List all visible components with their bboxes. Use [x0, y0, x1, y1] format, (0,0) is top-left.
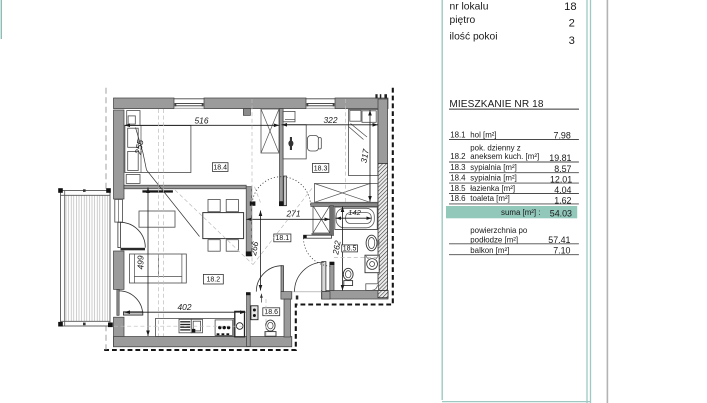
svg-text:piętro: piętro: [450, 15, 476, 26]
svg-text:18.3: 18.3: [314, 165, 328, 172]
svg-text:18.5: 18.5: [450, 184, 466, 193]
svg-text:18.4: 18.4: [213, 164, 227, 171]
svg-text:322: 322: [324, 115, 338, 125]
svg-text:3: 3: [569, 35, 575, 47]
svg-text:18.1: 18.1: [275, 235, 289, 242]
svg-text:sypialnia [m²]: sypialnia [m²]: [470, 163, 516, 172]
svg-text:balkon [m²]: balkon [m²]: [470, 246, 509, 255]
svg-text:499: 499: [135, 255, 145, 269]
svg-text:516: 516: [195, 115, 209, 125]
svg-text:aneksem kuch. [m²]: aneksem kuch. [m²]: [470, 152, 539, 161]
svg-text:7.10: 7.10: [553, 246, 570, 256]
svg-text:142: 142: [348, 208, 361, 217]
svg-text:18.2: 18.2: [206, 277, 220, 284]
svg-text:18.1: 18.1: [450, 131, 465, 140]
svg-text:ilość pokoi: ilość pokoi: [450, 32, 498, 43]
svg-text:hol [m²]: hol [m²]: [470, 131, 496, 140]
svg-text:402: 402: [178, 302, 192, 312]
svg-text:powierzchnia po: powierzchnia po: [470, 226, 528, 235]
svg-text:7.98: 7.98: [554, 130, 571, 140]
svg-text:toaleta [m²]: toaleta [m²]: [470, 194, 509, 203]
svg-text:suma [m²] :: suma [m²] :: [501, 208, 540, 217]
svg-text:2: 2: [569, 17, 575, 29]
svg-text:271: 271: [286, 208, 301, 218]
svg-text:nr lokalu: nr lokalu: [450, 2, 489, 13]
svg-text:54.03: 54.03: [550, 209, 572, 219]
svg-text:18.6: 18.6: [264, 309, 278, 316]
svg-text:18.6: 18.6: [450, 194, 466, 203]
svg-text:MIESZKANIE NR 18: MIESZKANIE NR 18: [449, 99, 543, 110]
svg-text:18.2: 18.2: [450, 152, 465, 161]
svg-text:18.5: 18.5: [343, 246, 357, 253]
svg-text:18.4: 18.4: [450, 173, 466, 182]
svg-text:łazienka [m²]: łazienka [m²]: [470, 184, 515, 193]
svg-text:18: 18: [564, 1, 576, 13]
svg-text:sypialnia [m²]: sypialnia [m²]: [470, 173, 516, 182]
svg-text:podłodze [m²]: podłodze [m²]: [470, 235, 518, 244]
svg-text:18.3: 18.3: [450, 163, 466, 172]
